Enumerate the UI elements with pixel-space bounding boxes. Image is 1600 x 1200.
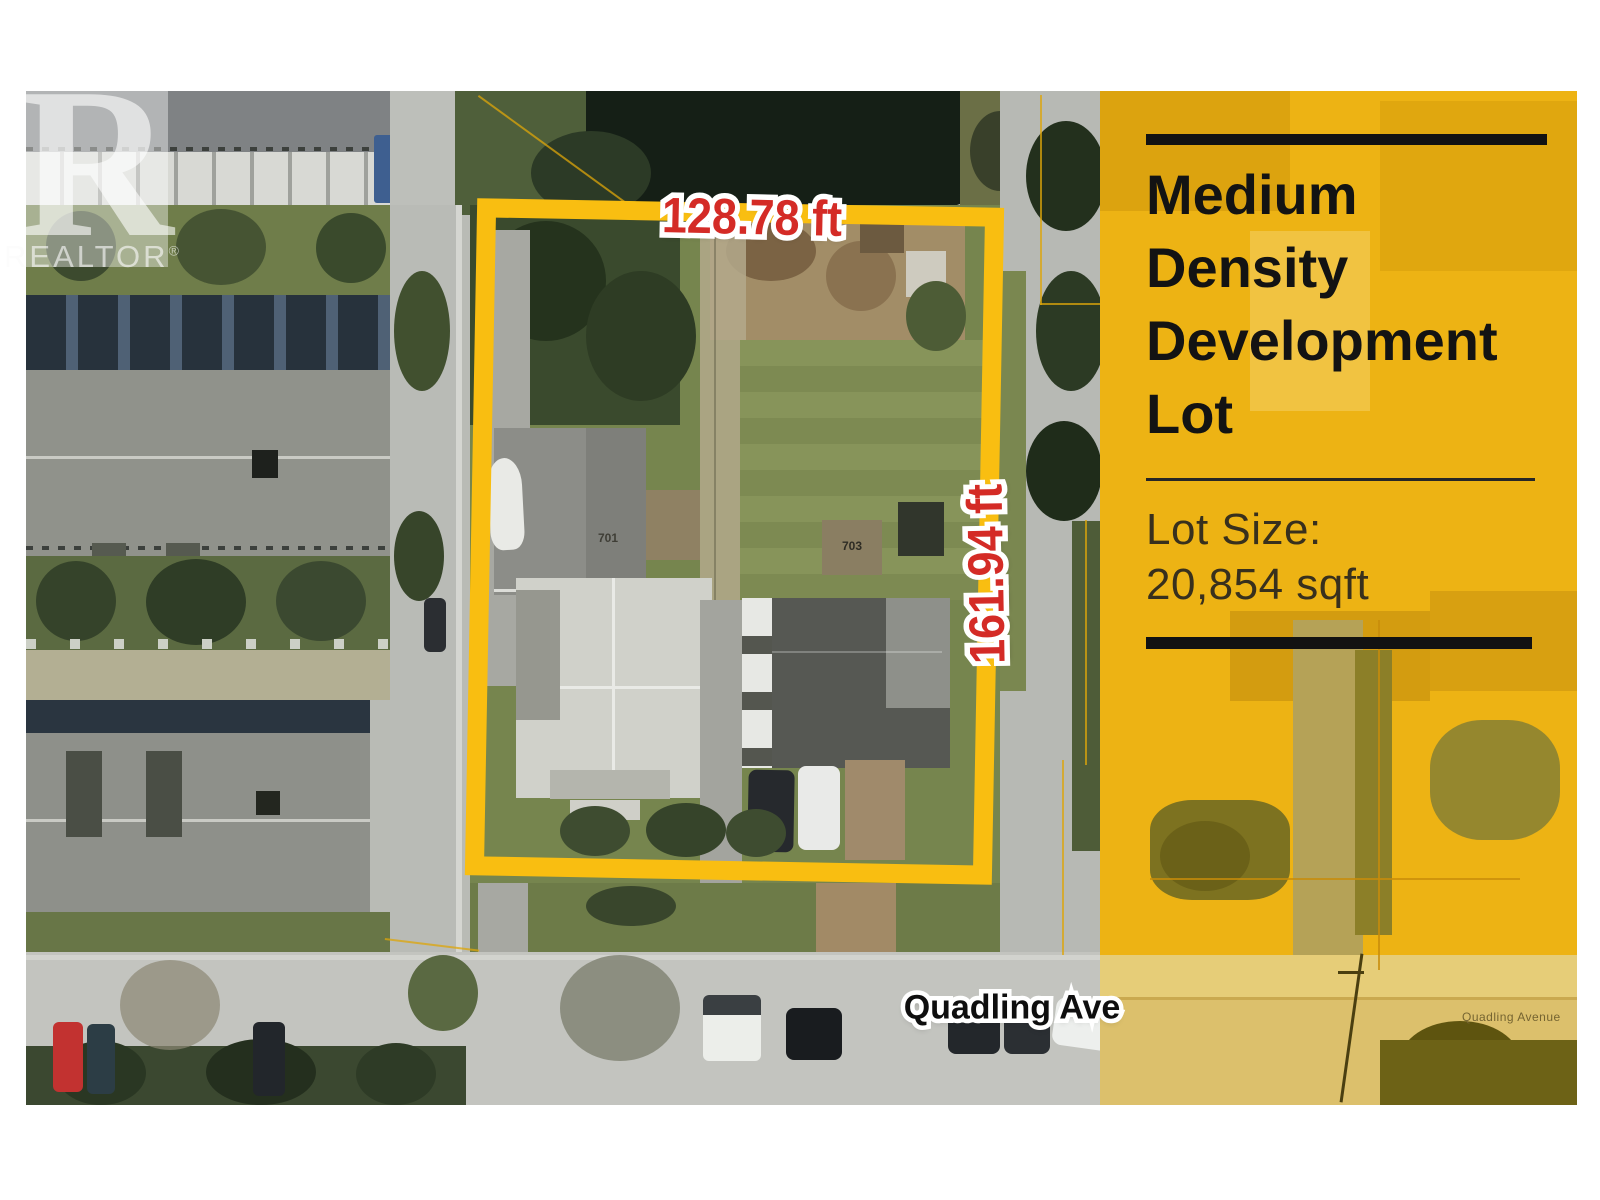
cadastral-line: [1150, 878, 1520, 880]
registered-mark: ®: [169, 243, 182, 259]
hedge: [586, 886, 676, 926]
lot-size-label: Lot Size:: [1146, 502, 1556, 557]
hedge: [356, 1043, 436, 1105]
divider-top: [1146, 134, 1547, 145]
panel-title: Medium Density Development Lot: [1146, 158, 1556, 450]
title-line: Medium: [1146, 158, 1556, 231]
red-car: [53, 1022, 83, 1092]
white-van: [703, 995, 761, 1061]
tree: [1036, 271, 1106, 391]
tinted-hedge: [1160, 821, 1250, 891]
tinted-trees: [1380, 1040, 1577, 1105]
road-segment: [390, 91, 462, 205]
bare-tree: [560, 955, 680, 1061]
map-street-name: Quadling Avenue: [1462, 1010, 1561, 1024]
cadastral-line: [1062, 760, 1064, 955]
tinted-sidewalk: [1100, 955, 1577, 1000]
listing-flyer: 701 703: [0, 0, 1600, 1200]
walkway-dots: [26, 639, 390, 649]
street-name-label: Quadling Ave Quadling Ave: [904, 989, 1121, 1028]
townhouse-backs: [26, 700, 370, 733]
tree: [1026, 421, 1102, 521]
van-windshield: [703, 995, 761, 1015]
townhouse-backs: [26, 295, 390, 372]
realtor-watermark: R REALTOR®: [10, 67, 185, 277]
cadastral-line: [1040, 95, 1042, 305]
driveway: [478, 883, 528, 952]
title-line: Development: [1146, 304, 1556, 377]
cadastral-line: [1085, 520, 1087, 765]
sidewalk: [456, 205, 462, 952]
lot-boundary-outline: [465, 198, 1004, 885]
tinted-hedge: [1355, 650, 1392, 935]
tree: [316, 213, 386, 283]
tree: [1026, 121, 1106, 231]
tree: [394, 271, 450, 391]
chimney: [256, 791, 280, 815]
cadastral-line: [1040, 303, 1102, 305]
tree: [276, 561, 366, 641]
tinted-shrubs: [1430, 720, 1560, 840]
brick-driveway: [816, 883, 896, 952]
roof-gable: [66, 751, 102, 837]
chimney: [252, 450, 278, 478]
info-panel: Quadling Avenue Medium Density Developme…: [1100, 91, 1577, 1105]
dark-car: [87, 1024, 115, 1094]
roof-ridge: [26, 456, 390, 459]
roof-eave-line: [26, 546, 390, 550]
tree: [394, 511, 444, 601]
dark-car: [253, 1022, 285, 1096]
roof-gable: [146, 751, 182, 837]
tree: [408, 955, 478, 1031]
lot-size-block: Lot Size: 20,854 sqft: [1146, 502, 1556, 612]
utility-pole-crossarm: [1338, 971, 1364, 974]
title-line: Density: [1146, 231, 1556, 304]
realtor-wordmark: REALTOR®: [4, 239, 182, 275]
parked-car: [424, 598, 446, 652]
sidewalk: [26, 955, 1105, 960]
divider-bottom: [1146, 637, 1532, 649]
lot-depth-dimension: 161.94 ft 161.94 ft: [955, 483, 1016, 664]
front-verge: [470, 883, 1000, 952]
building-roof: [26, 370, 390, 557]
gravel-path: [26, 650, 390, 700]
lot-size-value: 20,854 sqft: [1146, 557, 1556, 612]
lot-width-dimension: 128.78 ft 128.78 ft: [661, 186, 842, 248]
tree: [176, 209, 266, 285]
cadastral-line: [1378, 620, 1380, 970]
black-car: [786, 1008, 842, 1060]
divider-thin: [1146, 478, 1535, 481]
title-line: Lot: [1146, 377, 1556, 450]
tree: [146, 559, 246, 645]
bare-tree: [120, 960, 220, 1050]
tree: [36, 561, 116, 641]
panel-content: Medium Density Development Lot Lot Size:…: [1146, 134, 1556, 649]
